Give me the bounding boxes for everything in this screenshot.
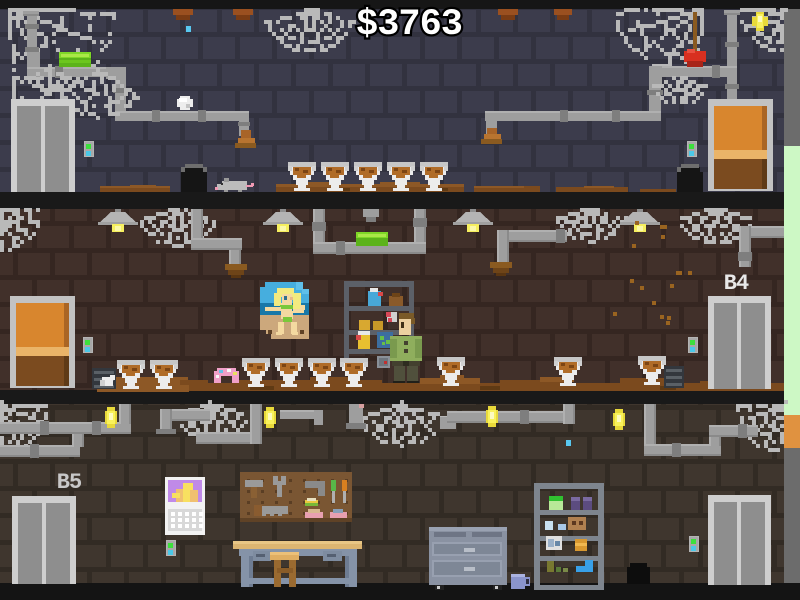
- svg-text:$3763: $3763: [356, 4, 462, 46]
- svg-text:B5: B5: [57, 470, 82, 495]
- svg-text:B4: B4: [724, 271, 749, 296]
